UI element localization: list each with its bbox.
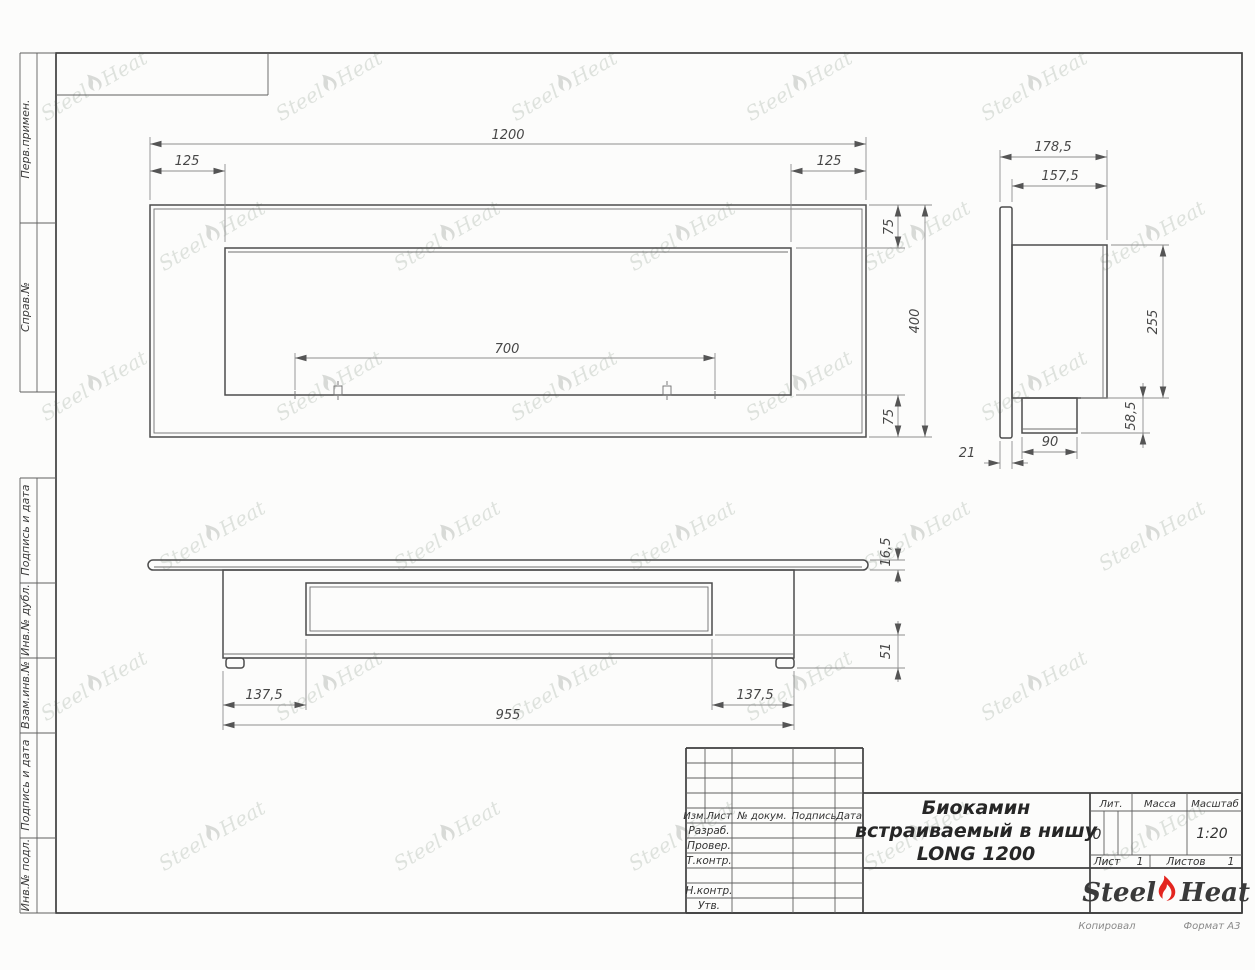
svg-text:Steel: Steel (154, 829, 211, 876)
watermark: SteelHeat (271, 344, 387, 426)
foot (226, 658, 244, 668)
svg-text:75: 75 (882, 219, 897, 236)
svg-text:90: 90 (1042, 435, 1059, 450)
svg-text:Heat: Heat (449, 795, 505, 841)
sidebar-label: Подпись и дата (19, 739, 32, 830)
mass-label: Масса (1144, 799, 1176, 810)
svg-text:Steel: Steel (271, 79, 328, 126)
svg-text:Heat: Heat (1036, 45, 1092, 91)
watermark: SteelHeat (1094, 494, 1210, 576)
sidebar-label: Подпись и дата (19, 484, 32, 575)
watermark: SteelHeat (36, 44, 152, 126)
svg-text:Heat: Heat (566, 645, 622, 691)
steelheat-logo: Steel Heat (1082, 876, 1250, 908)
foot (776, 658, 794, 668)
svg-text:Heat: Heat (96, 645, 152, 691)
svg-text:Steel: Steel (624, 229, 681, 276)
watermark: SteelHeat (154, 194, 270, 276)
footer-format: Формат А3 (1184, 921, 1241, 932)
stamp-col-docnum: № докум. (736, 811, 786, 822)
dim-side-burner-height: 58,5 (1081, 383, 1150, 448)
drawing-sheet: SteelHeatSteelHeatSteelHeatSteelHeatStee… (0, 0, 1255, 970)
watermark: SteelHeat (624, 494, 740, 576)
svg-text:21: 21 (959, 446, 976, 461)
svg-text:Steel: Steel (624, 829, 681, 876)
svg-text:Heat: Heat (684, 195, 740, 241)
niche-opening (225, 248, 791, 395)
svg-text:Steel: Steel (271, 379, 328, 426)
svg-text:125: 125 (817, 154, 842, 169)
stamp-row-tkontr: Т.контр. (686, 855, 732, 867)
svg-text:Steel: Steel (154, 229, 211, 276)
dim-front-width: 1200 (150, 128, 866, 200)
dim-front-offset-right: 125 (791, 154, 866, 242)
svg-text:16,5: 16,5 (879, 538, 894, 567)
svg-text:Steel: Steel (1094, 529, 1151, 576)
stamp-row-utv: Утв. (698, 900, 720, 912)
svg-text:Steel: Steel (976, 79, 1033, 126)
svg-text:Heat: Heat (214, 795, 270, 841)
watermark: SteelHeat (271, 44, 387, 126)
watermark: SteelHeat (271, 644, 387, 726)
lit-value: 0 (1093, 827, 1102, 843)
watermark: SteelHeat (506, 344, 622, 426)
watermark: SteelHeat (624, 194, 740, 276)
svg-text:255: 255 (1146, 310, 1161, 335)
svg-text:Heat: Heat (449, 495, 505, 541)
svg-text:137,5: 137,5 (245, 688, 282, 703)
stamp-col-izm: Изм. (683, 811, 707, 822)
sidebar-label: Инв.№ подл. (19, 839, 32, 911)
watermark: SteelHeat (389, 494, 505, 576)
svg-text:125: 125 (175, 154, 200, 169)
sidebar-label: Взам.инв.№ (19, 661, 32, 729)
sidebar-label: Перв.примен. (19, 99, 32, 178)
watermark: SteelHeat (741, 644, 857, 726)
svg-text:Steel: Steel (36, 679, 93, 726)
sheets-value: 1 (1228, 856, 1235, 868)
svg-text:Heat: Heat (801, 345, 857, 391)
dim-side-depth-body: 157,5 (1012, 169, 1107, 202)
svg-text:1200: 1200 (491, 128, 524, 143)
watermark-layer: SteelHeatSteelHeatSteelHeatSteelHeatStee… (36, 44, 1210, 876)
svg-text:Heat: Heat (214, 195, 270, 241)
svg-text:Heat: Heat (919, 195, 975, 241)
svg-text:Steel: Steel (506, 379, 563, 426)
doc-number-box (56, 53, 268, 95)
watermark: SteelHeat (154, 494, 270, 576)
svg-text:Steel: Steel (976, 379, 1033, 426)
watermark: SteelHeat (976, 44, 1092, 126)
sheet-value: 1 (1137, 856, 1144, 868)
svg-text:Heat: Heat (1036, 345, 1092, 391)
watermark: SteelHeat (1094, 194, 1210, 276)
footer-copy: Копировал (1078, 921, 1136, 932)
svg-text:Steel: Steel (36, 79, 93, 126)
dim-front-margin-bottom: 75 (796, 395, 905, 437)
stamp-row-nkontr: Н.контр. (686, 885, 733, 897)
watermark: SteelHeat (741, 44, 857, 126)
svg-text:Steel: Steel (36, 379, 93, 426)
svg-text:Steel: Steel (389, 529, 446, 576)
mounting-clip (663, 381, 671, 400)
svg-text:Heat: Heat (1036, 645, 1092, 691)
svg-text:Heat: Heat (214, 495, 270, 541)
svg-text:Heat: Heat (566, 345, 622, 391)
scale-label: Масштаб (1191, 798, 1239, 810)
svg-text:Heat: Heat (449, 195, 505, 241)
watermark: SteelHeat (741, 344, 857, 426)
logo-heat: Heat (1179, 878, 1250, 908)
svg-text:51: 51 (879, 643, 894, 660)
watermark: SteelHeat (859, 494, 975, 576)
svg-text:137,5: 137,5 (736, 688, 773, 703)
top-plate (148, 560, 868, 570)
svg-text:58,5: 58,5 (1124, 402, 1139, 431)
watermark: SteelHeat (154, 794, 270, 876)
svg-text:Биокамин: Биокамин (922, 797, 1031, 819)
scale-value: 1:20 (1196, 826, 1228, 842)
sidebar-label: Инв.№ дубл. (19, 584, 32, 656)
svg-text:178,5: 178,5 (1034, 140, 1071, 155)
sheets-label: Листов (1165, 856, 1205, 868)
svg-text:встраиваемый в нишу: встраиваемый в нишу (855, 820, 1099, 842)
sidebar-label: Справ.№ (19, 282, 32, 332)
title-block: Изм. Лист № докум. Подпись Дата Разраб. … (683, 748, 1250, 932)
svg-text:Heat: Heat (96, 345, 152, 391)
sidebar-column: Перв.примен. Справ.№ Подпись и дата Инв.… (19, 53, 56, 913)
svg-text:157,5: 157,5 (1041, 169, 1078, 184)
svg-text:700: 700 (495, 342, 520, 357)
svg-text:Steel: Steel (741, 379, 798, 426)
svg-text:Steel: Steel (154, 529, 211, 576)
watermark: SteelHeat (36, 344, 152, 426)
watermark: SteelHeat (36, 644, 152, 726)
svg-text:Heat: Heat (331, 45, 387, 91)
svg-text:Steel: Steel (741, 79, 798, 126)
svg-text:Heat: Heat (331, 345, 387, 391)
logo-steel: Steel (1082, 878, 1156, 908)
sheet-label: Лист (1093, 856, 1121, 868)
svg-text:Steel: Steel (976, 679, 1033, 726)
stamp-row-razrab: Разраб. (688, 825, 729, 837)
svg-text:Heat: Heat (801, 45, 857, 91)
dim-side-burner-width: 90 (1022, 435, 1077, 459)
svg-text:Heat: Heat (684, 495, 740, 541)
watermark: SteelHeat (506, 644, 622, 726)
lit-label: Лит. (1098, 799, 1122, 810)
svg-text:Steel: Steel (506, 79, 563, 126)
svg-text:Heat: Heat (919, 495, 975, 541)
svg-text:75: 75 (882, 409, 897, 426)
svg-text:Steel: Steel (389, 229, 446, 276)
watermark: SteelHeat (389, 794, 505, 876)
svg-text:400: 400 (908, 309, 923, 334)
flame-icon (1159, 876, 1176, 901)
watermark: SteelHeat (976, 644, 1092, 726)
dim-side-flange: 21 (959, 441, 1028, 469)
svg-text:Steel: Steel (624, 529, 681, 576)
burner-opening (306, 583, 712, 635)
svg-text:955: 955 (496, 708, 521, 723)
watermark: SteelHeat (389, 194, 505, 276)
stamp-col-list: Лист (705, 811, 733, 822)
svg-text:Steel: Steel (389, 829, 446, 876)
dim-side-body-height: 255 (1081, 245, 1169, 398)
svg-text:Heat: Heat (331, 645, 387, 691)
svg-text:Heat: Heat (1154, 495, 1210, 541)
dim-side-depth-overall: 178,5 (1000, 140, 1107, 240)
svg-text:LONG 1200: LONG 1200 (917, 843, 1036, 865)
burner-block-section (1022, 398, 1077, 433)
stamp-col-podpis: Подпись (792, 811, 837, 822)
svg-text:Heat: Heat (1154, 195, 1210, 241)
stamp-row-prover: Провер. (687, 840, 731, 852)
svg-text:Heat: Heat (566, 45, 622, 91)
watermark: SteelHeat (976, 344, 1092, 426)
watermark: SteelHeat (506, 44, 622, 126)
svg-text:Heat: Heat (96, 45, 152, 91)
watermark: SteelHeat (859, 194, 975, 276)
